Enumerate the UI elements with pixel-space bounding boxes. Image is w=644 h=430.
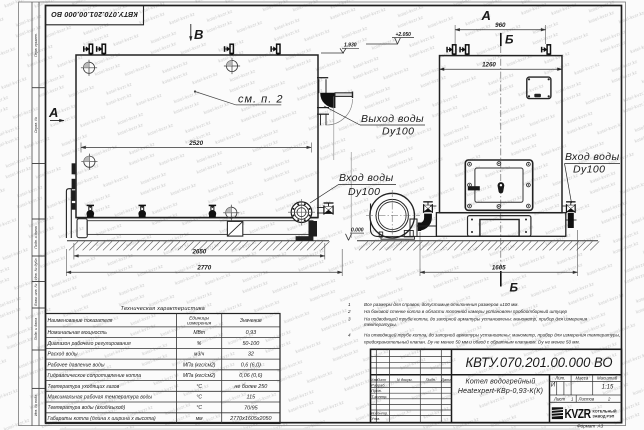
svg-text:115: 115 — [247, 395, 257, 401]
svg-text:Вход воды: Вход воды — [339, 172, 394, 184]
svg-text:А: А — [481, 8, 491, 23]
svg-text:Пров.: Пров. — [371, 388, 382, 393]
svg-text:Температура уходящих газов: Температура уходящих газов — [48, 384, 120, 390]
svg-text:1: 1 — [348, 302, 351, 307]
svg-text:Все размеры для справок, допус: Все размеры для справок, допустимые откл… — [364, 302, 519, 307]
svg-text:На подводящей трубе котла, д: На подводящей трубе котла, до запорной а… — [364, 316, 588, 322]
svg-text:Инв. № подл.: Инв. № подл. — [34, 394, 38, 416]
svg-text:Масса: Масса — [576, 376, 589, 381]
svg-text:Гидравлическое сопротивление к: Гидравлическое сопротивление котла — [48, 373, 142, 379]
svg-text:2770: 2770 — [196, 265, 211, 272]
svg-text:°С: °С — [196, 394, 202, 400]
svg-text:1260: 1260 — [482, 62, 496, 69]
svg-text:+2.050: +2.050 — [396, 32, 412, 38]
svg-text:Б: Б — [510, 281, 519, 295]
svg-text:Лист: Лист — [553, 397, 565, 402]
svg-text:Справ. №: Справ. № — [34, 117, 38, 133]
svg-text:Dy100: Dy100 — [382, 126, 414, 138]
svg-text:2650: 2650 — [191, 248, 206, 255]
svg-text:Взам. инв. №: Взам. инв. № — [34, 283, 38, 305]
svg-text:0,6 (6,0): 0,6 (6,0) — [241, 362, 261, 368]
svg-text:Листов: Листов — [578, 397, 595, 402]
svg-text:1.930: 1.930 — [344, 43, 357, 49]
svg-text:0,06 (0,6): 0,06 (0,6) — [239, 373, 262, 379]
svg-text:предохранительный клапан. Dу н: предохранительный клапан. Dу не менее 50… — [364, 339, 580, 345]
svg-text:3: 3 — [348, 317, 351, 322]
svg-text:м3/ч: м3/ч — [194, 352, 205, 358]
svg-text:Наименование показателя: Наименование показателя — [48, 318, 113, 324]
svg-text:2770х1605х2050: 2770х1605х2050 — [229, 416, 271, 422]
svg-text:Выход воды: Выход воды — [361, 113, 424, 125]
svg-text:N докум.: N докум. — [397, 377, 413, 382]
svg-text:1605: 1605 — [492, 265, 506, 272]
svg-text:Инв. № дубл.: Инв. № дубл. — [34, 258, 38, 280]
svg-text:Температура воды (вход/выход): Температура воды (вход/выход) — [48, 405, 126, 411]
svg-text:Перв. примен.: Перв. примен. — [34, 33, 38, 57]
svg-text:КВТУ.070.201.00.000 ВО: КВТУ.070.201.00.000 ВО — [51, 10, 138, 19]
svg-text:0,93: 0,93 — [246, 330, 257, 336]
svg-text:Dy100: Dy100 — [348, 186, 380, 198]
svg-text:ЗАВОД РЭП: ЗАВОД РЭП — [593, 414, 615, 418]
svg-text:Н.контр.: Н.контр. — [371, 411, 388, 416]
svg-text:Рабочее давление воды: Рабочее давление воды — [48, 362, 105, 368]
svg-text:Подп.: Подп. — [426, 377, 436, 382]
svg-text:Диапазон рабочего регулировани: Диапазон рабочего регулирования — [47, 341, 131, 347]
svg-text:2520: 2520 — [188, 140, 203, 147]
svg-text:Котел водогрейный: Котел водогрейный — [466, 378, 536, 386]
svg-text:Вход воды: Вход воды — [565, 151, 620, 163]
svg-text:960: 960 — [495, 22, 506, 29]
svg-text:МВт: МВт — [193, 330, 205, 336]
svg-text:Heatexpert-КВр-0,93-К(К): Heatexpert-КВр-0,93-К(К) — [458, 388, 543, 395]
svg-text:Утв.: Утв. — [371, 416, 380, 421]
svg-text:Максимальная рабочая температу: Максимальная рабочая температура воды — [48, 394, 153, 400]
svg-text:50-100: 50-100 — [242, 341, 259, 347]
svg-text:32: 32 — [248, 352, 254, 358]
svg-text:МПа (кгс/см2): МПа (кгс/см2) — [183, 362, 216, 368]
svg-text:И: И — [551, 382, 556, 388]
svg-text:На боковой стенке котла в обла: На боковой стенке котла в области топочн… — [364, 308, 568, 314]
svg-text:измерения: измерения — [187, 322, 211, 327]
svg-text:Габариты котла (длина х ширина: Габариты котла (длина х ширина х высота) — [48, 416, 156, 422]
svg-text:А3: А3 — [597, 424, 604, 429]
svg-text:Т.контр.: Т.контр. — [371, 394, 387, 399]
svg-text:°С: °С — [196, 405, 202, 411]
svg-text:2: 2 — [347, 309, 351, 314]
svg-text:Подп. и дата: Подп. и дата — [34, 318, 38, 341]
svg-text:Расход воды: Расход воды — [48, 352, 78, 358]
svg-text:Подп. и дата: Подп. и дата — [34, 226, 38, 249]
svg-text:На отводящей трубе котла, до з: На отводящей трубе котла, до запорной ар… — [364, 331, 620, 337]
svg-text:0.000: 0.000 — [351, 228, 364, 234]
svg-text:Dy100: Dy100 — [573, 164, 605, 176]
svg-text:Техническая характеристика: Техническая характеристика — [121, 306, 205, 312]
svg-text:Номинальная мощность: Номинальная мощность — [48, 330, 108, 336]
svg-text:А: А — [48, 105, 58, 120]
svg-text:Лист: Лист — [376, 378, 386, 382]
svg-text:%: % — [197, 341, 202, 347]
svg-text:KVZR: KVZR — [565, 406, 592, 421]
svg-text:КВТУ.070.201.00.000 ВО: КВТУ.070.201.00.000 ВО — [466, 355, 613, 371]
svg-text:температуры.: температуры. — [364, 322, 397, 327]
svg-text:Масштаб: Масштаб — [597, 376, 618, 381]
svg-text:Дата: Дата — [440, 377, 452, 382]
svg-text:4: 4 — [348, 332, 351, 337]
svg-text:Разраб.: Разраб. — [371, 383, 385, 388]
svg-text:В: В — [194, 27, 203, 42]
svg-text:Значение: Значение — [240, 318, 262, 324]
svg-text:не более 250: не более 250 — [234, 384, 267, 390]
svg-text:КОТЕЛЬНЫЙ: КОТЕЛЬНЫЙ — [593, 409, 617, 413]
svg-text:МПа (кгс/см2): МПа (кгс/см2) — [183, 373, 216, 379]
svg-text:Лит.: Лит. — [554, 376, 565, 381]
svg-text:Формат: Формат — [577, 424, 595, 429]
svg-text:1:15: 1:15 — [602, 384, 614, 390]
svg-text:70/95: 70/95 — [244, 405, 258, 411]
svg-text:Б: Б — [505, 33, 514, 47]
svg-text:°С: °С — [196, 384, 202, 390]
svg-text:мм: мм — [196, 416, 203, 422]
svg-text:см. п. 2: см. п. 2 — [238, 94, 283, 106]
